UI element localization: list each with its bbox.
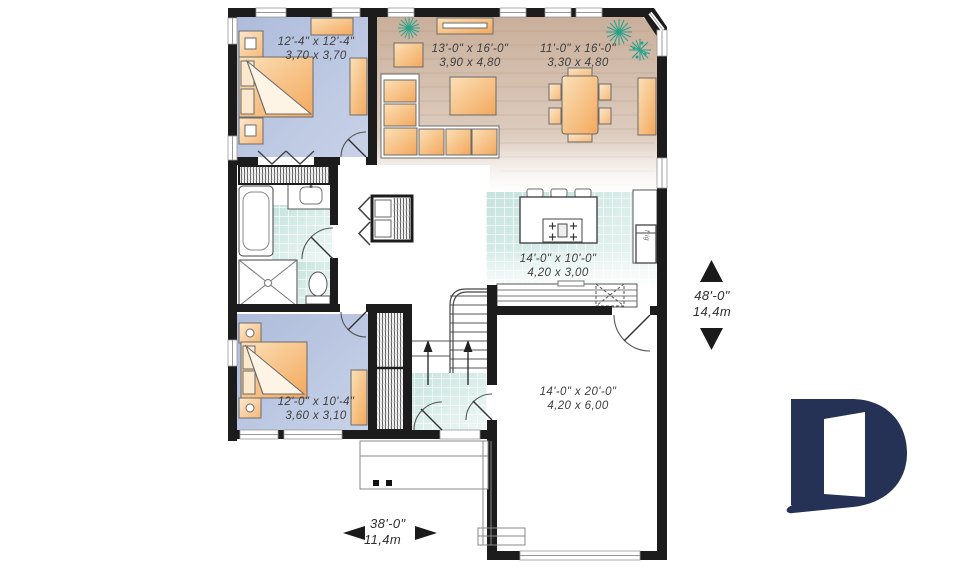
sofa-corner xyxy=(384,128,417,155)
chest xyxy=(350,58,367,115)
stool xyxy=(551,189,567,197)
sofa-cushion xyxy=(384,80,416,102)
dining-dim-imperial: 11'-0" x 16'-0" xyxy=(513,43,643,57)
width-metric: 11,4m xyxy=(364,532,420,548)
garage-back-door xyxy=(614,315,650,351)
bedroom1-closet xyxy=(239,166,330,184)
overall-depth-dimension: 48'-0" 14,4m xyxy=(678,288,746,319)
porch-post xyxy=(386,480,392,486)
depth-imperial: 48'-0" xyxy=(678,288,746,304)
bedroom2-label: 12'-0" x 10'-4" 3,60 x 3,10 xyxy=(251,396,381,423)
sofa-cushion xyxy=(384,104,416,126)
hall-closet xyxy=(359,196,412,245)
buffet xyxy=(638,78,656,135)
stool xyxy=(527,189,543,197)
dining-table xyxy=(562,76,598,134)
sofa-cushion xyxy=(419,129,444,155)
floor-plan-page: 12'-4" x 12'-4" 3,70 x 3,70 13'-0" x 16'… xyxy=(0,0,960,569)
sink xyxy=(300,187,322,204)
fridge-label: frig xyxy=(643,230,650,241)
kitchen-dim-metric: 4,20 x 3,00 xyxy=(493,267,623,281)
garage-label: 14'-0" x 20'-0" 4,20 x 6,00 xyxy=(513,386,643,413)
bedroom1-dim-imperial: 12'-4" x 12'-4" xyxy=(251,36,381,50)
bedroom2-dim-imperial: 12'-0" x 10'-4" xyxy=(251,396,381,410)
bifold-door xyxy=(359,197,370,220)
bedroom1-dim-metric: 3,70 x 3,70 xyxy=(251,50,381,64)
sofa-cushion xyxy=(446,129,471,155)
bifold-door xyxy=(359,222,370,245)
width-imperial: 38'-0" xyxy=(364,516,420,532)
floor-plan-drawing xyxy=(0,0,960,569)
dimension-arrow-up-icon xyxy=(700,260,723,282)
dining-label: 11'-0" x 16'-0" 3,30 x 4,80 xyxy=(513,43,643,70)
sink xyxy=(558,281,584,286)
bedroom1-label: 12'-4" x 12'-4" 3,70 x 3,70 xyxy=(251,36,381,63)
dimension-arrow-down-icon xyxy=(700,328,723,350)
bedroom2-dim-metric: 3,60 x 3,10 xyxy=(251,410,381,424)
chair xyxy=(568,134,592,142)
foyer-floor xyxy=(405,373,487,430)
chair xyxy=(549,84,561,100)
dresser xyxy=(311,18,353,35)
garage-dim-imperial: 14'-0" x 20'-0" xyxy=(513,386,643,400)
depth-metric: 14,4m xyxy=(678,304,746,320)
shower xyxy=(239,260,297,306)
overall-width-dimension: 38'-0" 11,4m xyxy=(364,516,420,547)
kitchen-label: 14'-0" x 10'-0" 4,20 x 3,00 xyxy=(493,253,623,280)
stairs xyxy=(410,289,487,385)
plant-icon xyxy=(398,17,420,39)
porch-post xyxy=(373,480,379,486)
chair xyxy=(549,108,561,124)
garage-dim-metric: 4,20 x 6,00 xyxy=(513,400,643,414)
chair xyxy=(599,84,611,100)
chair xyxy=(599,108,611,124)
dining-dim-metric: 3,30 x 4,80 xyxy=(513,57,643,71)
sofa-cushion xyxy=(472,129,497,155)
kitchen-dim-imperial: 14'-0" x 10'-0" xyxy=(493,253,623,267)
stool xyxy=(575,189,591,197)
drummond-logo xyxy=(787,399,907,513)
entry-door-opening xyxy=(440,430,480,439)
dimension-arrow-left-icon xyxy=(343,526,365,540)
coffee-table xyxy=(450,77,496,115)
